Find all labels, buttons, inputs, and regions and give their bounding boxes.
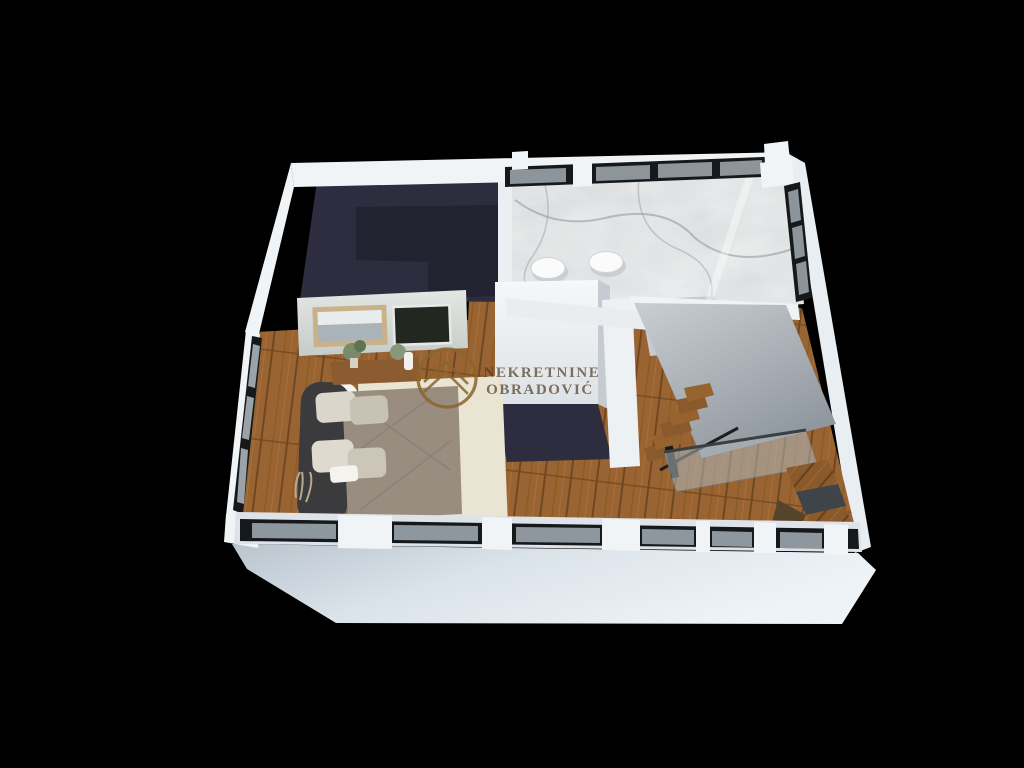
floorplan-svg: NEKRETNINE OBRADOVIĆ — [0, 0, 1024, 768]
front-exterior-wall-face — [232, 544, 876, 624]
plant-foliage — [354, 340, 366, 352]
watermark-line1: NEKRETNINE — [484, 365, 601, 381]
corner-pillar — [760, 158, 794, 188]
wall-pillar-stub — [512, 151, 528, 170]
table-lamp — [404, 352, 413, 370]
plant-foliage — [390, 344, 406, 360]
tv-screen — [393, 305, 450, 345]
center-block-navy-front — [495, 404, 612, 462]
pillow — [349, 395, 389, 426]
watermark-line2: OBRADOVIĆ — [486, 381, 594, 398]
bed-sheet — [329, 465, 358, 483]
plant-vase — [350, 358, 358, 368]
sink-right — [589, 252, 623, 273]
sink-left — [531, 258, 565, 279]
floorplan-render: NEKRETNINE OBRADOVIĆ — [0, 0, 1024, 768]
picture-sky — [317, 310, 381, 325]
top-wall-pillar — [573, 159, 592, 187]
